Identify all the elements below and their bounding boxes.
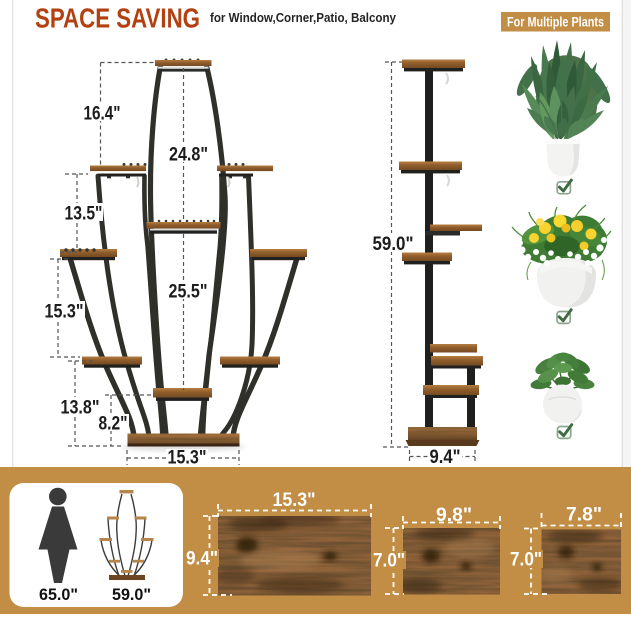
svg-text:25.5": 25.5" [169, 282, 208, 303]
svg-text:9.8": 9.8" [436, 504, 472, 526]
svg-text:SPACE SAVING: SPACE SAVING [35, 3, 200, 34]
svg-text:13.5": 13.5" [65, 204, 103, 225]
svg-text:8.2": 8.2" [99, 414, 128, 435]
svg-text:7.0": 7.0" [373, 550, 405, 572]
svg-text:15.3": 15.3" [168, 448, 207, 469]
svg-text:15.3": 15.3" [273, 489, 316, 511]
svg-text:13.8": 13.8" [61, 398, 100, 419]
svg-text:59.0": 59.0" [373, 233, 414, 255]
svg-text:7.8": 7.8" [566, 504, 602, 526]
svg-text:For Multiple Plants: For Multiple Plants [507, 14, 604, 29]
svg-text:15.3": 15.3" [45, 302, 84, 323]
svg-text:7.0": 7.0" [510, 549, 542, 571]
svg-text:9.4": 9.4" [430, 447, 461, 468]
svg-text:24.8": 24.8" [169, 145, 208, 166]
svg-text:for Window,Corner,Patio, Balco: for Window,Corner,Patio, Balcony [210, 10, 397, 25]
svg-text:59.0": 59.0" [112, 586, 151, 604]
svg-text:65.0": 65.0" [39, 586, 78, 604]
svg-text:16.4": 16.4" [84, 104, 121, 125]
svg-text:9.4": 9.4" [186, 548, 218, 570]
